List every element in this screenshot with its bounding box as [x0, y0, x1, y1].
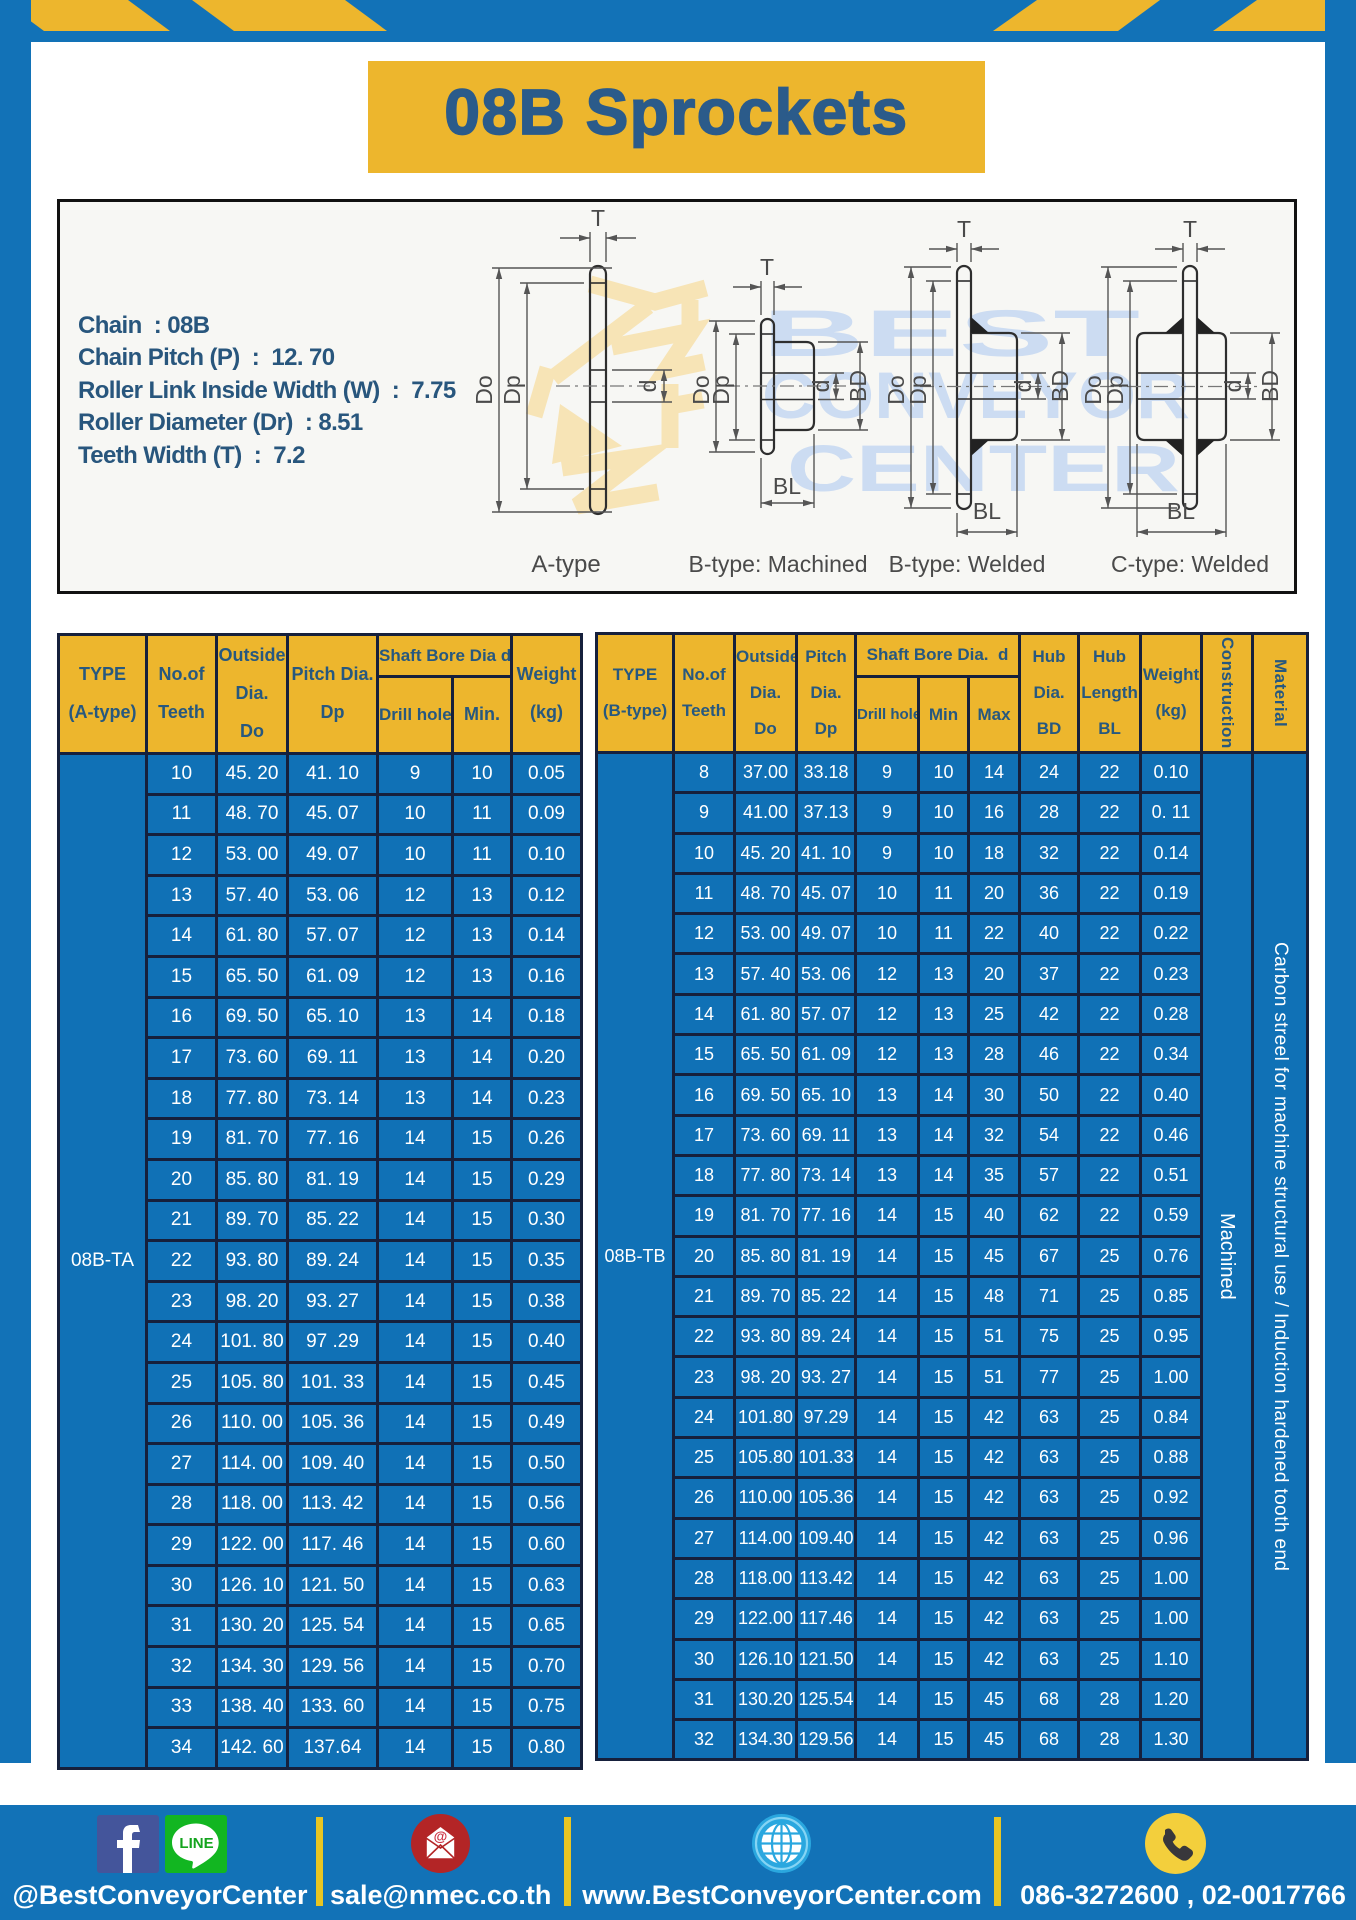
svg-text:C-type: Welded: C-type: Welded: [1111, 551, 1269, 577]
svg-text:Dp: Dp: [499, 375, 525, 404]
svg-text:B-type: Machined: B-type: Machined: [689, 551, 868, 577]
svg-text:Do: Do: [471, 375, 497, 404]
svg-text:T: T: [957, 216, 971, 242]
svg-text:BL: BL: [1167, 498, 1195, 524]
svg-text:d: d: [1010, 380, 1036, 393]
svg-text:BL: BL: [973, 498, 1001, 524]
svg-text:BD: BD: [1257, 370, 1283, 402]
svg-text:LINE: LINE: [179, 1835, 213, 1852]
svg-text:BL: BL: [773, 473, 801, 499]
svg-text:BD: BD: [1047, 370, 1073, 402]
svg-text:Dp: Dp: [708, 375, 734, 404]
svg-text:A-type: A-type: [531, 551, 600, 578]
svg-text:d: d: [1220, 380, 1246, 393]
svg-text:d: d: [635, 380, 661, 393]
svg-text:T: T: [760, 254, 774, 280]
svg-text:Dp: Dp: [1102, 375, 1128, 404]
svg-text:T: T: [591, 205, 605, 231]
svg-text:Dp: Dp: [905, 375, 931, 404]
svg-text:T: T: [1183, 216, 1197, 242]
svg-text:d: d: [808, 380, 834, 393]
svg-text:BD: BD: [845, 370, 871, 402]
svg-text:B-type: Welded: B-type: Welded: [889, 551, 1046, 577]
svg-text:@: @: [434, 1828, 448, 1844]
